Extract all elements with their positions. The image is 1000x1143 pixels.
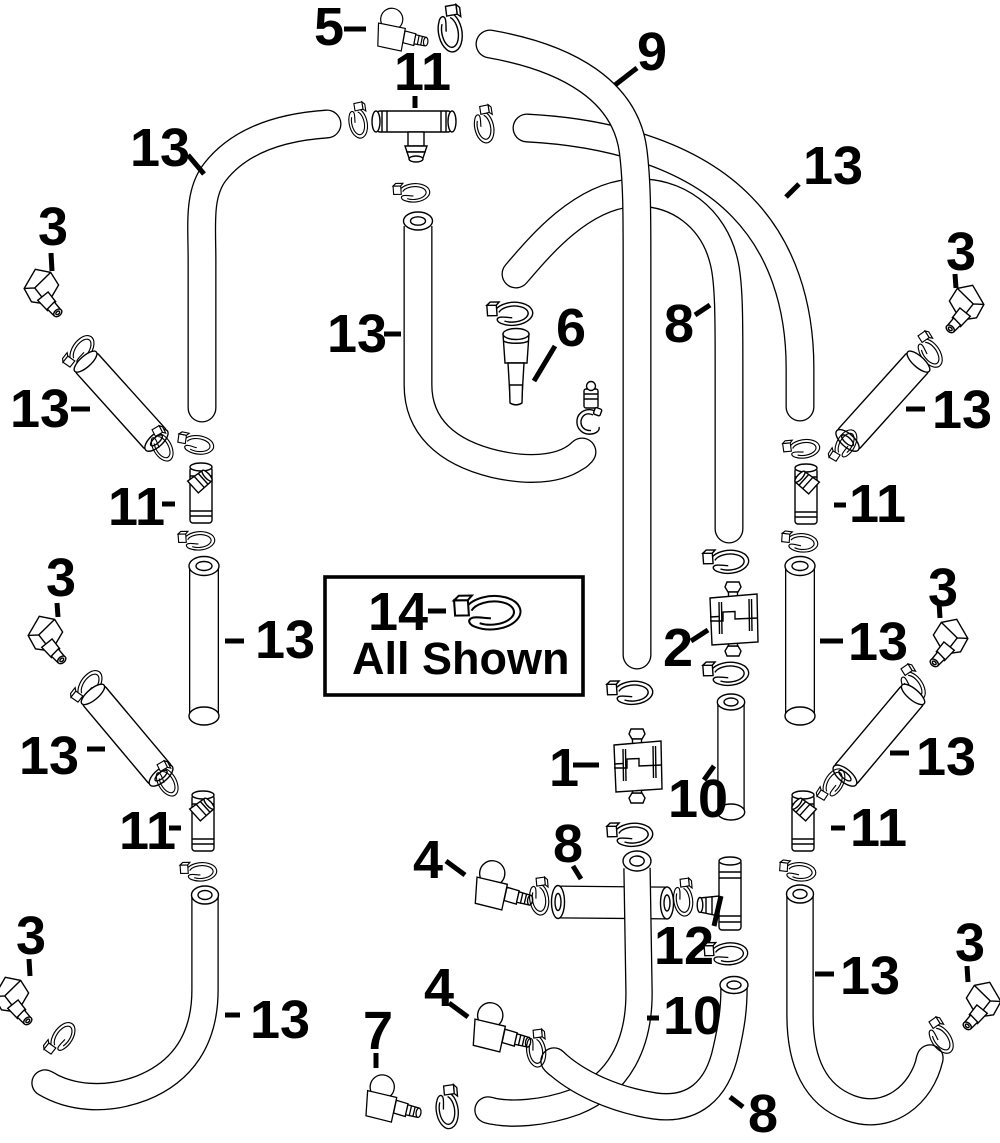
- svg-text:3: 3: [46, 548, 76, 608]
- svg-text:9: 9: [637, 22, 667, 82]
- svg-text:13: 13: [130, 118, 190, 178]
- svg-text:1: 1: [549, 738, 579, 798]
- svg-text:3: 3: [946, 222, 976, 282]
- svg-text:4: 4: [424, 958, 454, 1018]
- svg-text:8: 8: [664, 294, 694, 354]
- svg-text:5: 5: [314, 0, 344, 57]
- svg-text:11: 11: [119, 801, 176, 861]
- svg-text:13: 13: [10, 379, 70, 439]
- svg-text:3: 3: [955, 913, 985, 973]
- svg-text:3: 3: [38, 197, 68, 257]
- svg-text:11: 11: [850, 798, 907, 858]
- svg-text:13: 13: [327, 304, 387, 364]
- svg-text:13: 13: [255, 610, 315, 670]
- svg-text:11: 11: [394, 42, 451, 102]
- svg-text:6: 6: [556, 298, 586, 358]
- svg-text:4: 4: [413, 830, 443, 890]
- svg-text:13: 13: [916, 727, 976, 787]
- svg-text:8: 8: [748, 1084, 778, 1143]
- svg-text:13: 13: [848, 612, 908, 672]
- svg-text:3: 3: [928, 558, 958, 618]
- svg-text:13: 13: [803, 136, 863, 196]
- svg-text:13: 13: [932, 380, 992, 440]
- svg-text:13: 13: [250, 990, 310, 1050]
- svg-text:11: 11: [108, 477, 165, 537]
- svg-text:13: 13: [19, 726, 79, 786]
- svg-text:7: 7: [363, 1001, 393, 1061]
- svg-text:2: 2: [663, 618, 693, 678]
- svg-text:11: 11: [849, 474, 906, 534]
- svg-text:10: 10: [663, 986, 723, 1046]
- svg-text:All Shown: All Shown: [352, 633, 570, 684]
- svg-text:13: 13: [840, 946, 900, 1006]
- svg-text:8: 8: [553, 814, 583, 874]
- svg-text:3: 3: [16, 906, 46, 966]
- svg-text:10: 10: [668, 769, 728, 829]
